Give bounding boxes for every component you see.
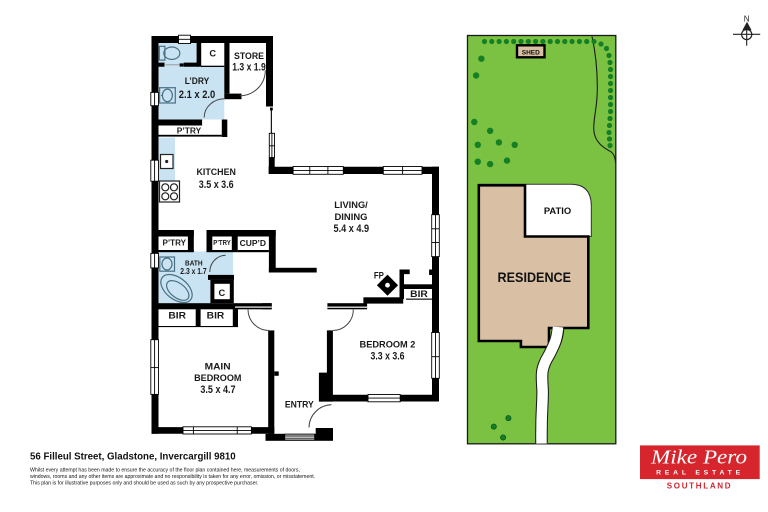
svg-text:SOUTHLAND: SOUTHLAND <box>667 481 733 490</box>
svg-text:BIR: BIR <box>410 289 428 299</box>
svg-text:BIR: BIR <box>207 311 225 321</box>
svg-text:P’TRY: P’TRY <box>163 237 187 247</box>
svg-text:windows, rooms and any other i: windows, rooms and any other items are a… <box>30 474 315 480</box>
svg-text:BEDROOM: BEDROOM <box>194 373 241 383</box>
svg-text:C: C <box>218 288 225 298</box>
svg-text:RESIDENCE: RESIDENCE <box>498 269 572 285</box>
svg-text:This plan is for illustrative: This plan is for illustrative purposes o… <box>30 480 258 486</box>
svg-text:PATIO: PATIO <box>544 206 571 217</box>
svg-text:BEDROOM 2: BEDROOM 2 <box>360 340 416 350</box>
svg-text:SHED: SHED <box>522 49 540 56</box>
svg-text:STORE: STORE <box>234 51 264 61</box>
svg-text:Whilst every attempt has been: Whilst every attempt has been made to en… <box>30 467 300 473</box>
svg-text:L’DRY: L’DRY <box>185 76 210 86</box>
svg-text:5.4 x 4.9: 5.4 x 4.9 <box>334 223 370 235</box>
svg-text:N: N <box>744 15 750 24</box>
svg-text:56 Filleul Street, Gladstone,: 56 Filleul Street, Gladstone, Invercargi… <box>30 452 236 463</box>
svg-text:CUP’D: CUP’D <box>240 238 266 248</box>
svg-text:REAL ESTATE: REAL ESTATE <box>656 469 744 476</box>
svg-text:1.3 x 1.9: 1.3 x 1.9 <box>232 61 266 73</box>
svg-text:2.1 x 2.0: 2.1 x 2.0 <box>179 89 216 101</box>
svg-text:C: C <box>209 48 216 58</box>
svg-text:2.3 x 1.7: 2.3 x 1.7 <box>180 267 207 276</box>
svg-text:3.5 x 4.7: 3.5 x 4.7 <box>200 384 235 396</box>
svg-text:KITCHEN: KITCHEN <box>197 167 236 177</box>
svg-text:BIR: BIR <box>168 311 186 321</box>
svg-text:3.5 x 3.6: 3.5 x 3.6 <box>199 179 234 191</box>
svg-text:DINING: DINING <box>335 212 368 222</box>
svg-text:P’TRY: P’TRY <box>213 238 231 247</box>
svg-text:ENTRY: ENTRY <box>285 399 314 409</box>
svg-text:Mike Pero: Mike Pero <box>650 448 747 469</box>
svg-text:FP: FP <box>374 271 384 281</box>
svg-text:P’TRY: P’TRY <box>177 126 202 136</box>
svg-text:MAIN: MAIN <box>205 361 231 371</box>
svg-text:3.3 x 3.6: 3.3 x 3.6 <box>371 350 405 362</box>
svg-text:LIVING/: LIVING/ <box>334 200 368 210</box>
